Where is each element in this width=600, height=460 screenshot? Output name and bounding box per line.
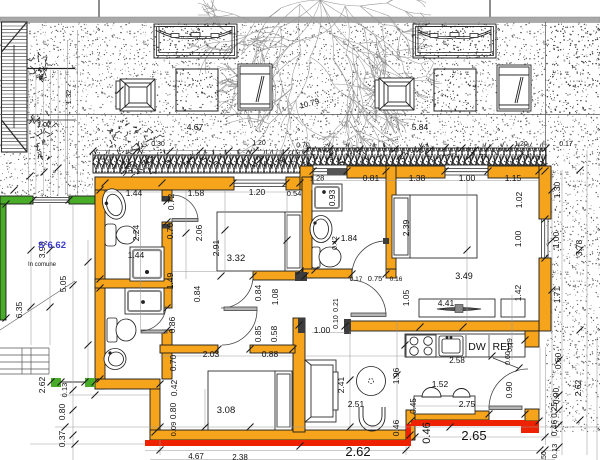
- svg-text:5.84: 5.84: [412, 122, 429, 132]
- svg-text:DW: DW: [468, 341, 486, 353]
- svg-text:3.08: 3.08: [217, 405, 236, 416]
- svg-text:6.35: 6.35: [14, 301, 24, 318]
- svg-text:2.58: 2.58: [449, 356, 465, 365]
- svg-text:0.70: 0.70: [296, 143, 310, 150]
- svg-text:0.46: 0.46: [549, 419, 559, 436]
- svg-text:1.20: 1.20: [252, 140, 266, 147]
- svg-text:S²6.62: S²6.62: [38, 240, 66, 251]
- svg-text:0.90: 0.90: [551, 387, 561, 404]
- svg-text:0.16: 0.16: [390, 276, 403, 283]
- svg-text:0.80: 0.80: [168, 402, 178, 419]
- svg-text:0.60: 0.60: [505, 351, 512, 365]
- svg-text:2.06: 2.06: [194, 224, 204, 241]
- svg-text:1.00: 1.00: [513, 230, 523, 247]
- svg-text:2.62: 2.62: [345, 444, 370, 459]
- svg-text:1.84: 1.84: [341, 233, 358, 243]
- svg-text:0.17: 0.17: [350, 276, 363, 283]
- svg-text:0.46: 0.46: [391, 419, 401, 436]
- svg-text:1.08: 1.08: [270, 288, 280, 305]
- svg-text:0.88: 0.88: [262, 349, 279, 359]
- svg-text:0.21: 0.21: [333, 298, 340, 312]
- svg-text:0.54: 0.54: [287, 189, 302, 198]
- svg-text:0.42: 0.42: [169, 379, 179, 396]
- svg-text:4.67: 4.67: [187, 122, 204, 132]
- svg-text:0.30: 0.30: [151, 141, 165, 148]
- svg-text:In comune: In comune: [28, 262, 57, 268]
- svg-text:1.58: 1.58: [188, 188, 205, 198]
- svg-text:2.75: 2.75: [459, 399, 476, 409]
- svg-text:0.93: 0.93: [327, 189, 337, 206]
- svg-text:0.84: 0.84: [192, 285, 202, 302]
- svg-text:2.65: 2.65: [461, 428, 486, 443]
- svg-text:3.49: 3.49: [455, 271, 473, 281]
- svg-text:1.52: 1.52: [432, 379, 449, 389]
- svg-text:1.02: 1.02: [37, 120, 52, 129]
- svg-text:1.71: 1.71: [552, 286, 562, 303]
- svg-text:0.86: 0.86: [167, 316, 177, 333]
- svg-text:2.91: 2.91: [211, 239, 221, 256]
- svg-text:1.50: 1.50: [541, 451, 548, 460]
- svg-text:0.17: 0.17: [559, 141, 573, 148]
- svg-text:0.10: 0.10: [333, 315, 340, 329]
- svg-text:0.25: 0.25: [550, 402, 559, 418]
- svg-text:1.02: 1.02: [514, 191, 524, 208]
- svg-text:0.85: 0.85: [253, 325, 263, 342]
- svg-text:0.75: 0.75: [368, 274, 383, 283]
- svg-text:1.42: 1.42: [513, 284, 523, 301]
- svg-text:0.45: 0.45: [409, 398, 418, 414]
- svg-text:4.41: 4.41: [438, 298, 455, 308]
- svg-text:1.49: 1.49: [165, 272, 175, 289]
- svg-text:2.03: 2.03: [203, 349, 220, 359]
- svg-text:1.15: 1.15: [505, 173, 522, 183]
- svg-text:0.60: 0.60: [553, 352, 563, 369]
- svg-text:1.28: 1.28: [310, 174, 325, 183]
- svg-text:0.13: 0.13: [60, 383, 69, 398]
- svg-text:1.44: 1.44: [128, 250, 145, 260]
- svg-text:3.78: 3.78: [574, 239, 584, 256]
- svg-text:0.37: 0.37: [57, 430, 67, 447]
- svg-text:1.32: 1.32: [64, 90, 73, 105]
- svg-text:0.09: 0.09: [169, 422, 178, 437]
- svg-text:2.51: 2.51: [348, 399, 365, 409]
- svg-text:0.90: 0.90: [504, 381, 514, 398]
- svg-text:1.20: 1.20: [514, 141, 528, 148]
- svg-text:0.70: 0.70: [165, 222, 175, 239]
- svg-text:0.13: 0.13: [550, 444, 559, 459]
- svg-text:0.58: 0.58: [269, 325, 279, 342]
- svg-text:1.20: 1.20: [249, 187, 266, 197]
- svg-text:1.00: 1.00: [314, 325, 331, 335]
- svg-text:0.72: 0.72: [166, 193, 176, 210]
- svg-text:2.39: 2.39: [401, 219, 411, 236]
- svg-text:0.42: 0.42: [332, 236, 339, 250]
- svg-text:0.29: 0.29: [507, 338, 514, 352]
- svg-text:0.70: 0.70: [168, 354, 178, 371]
- svg-text:0.46: 0.46: [421, 422, 433, 443]
- svg-text:1.38: 1.38: [409, 173, 426, 183]
- svg-text:2.24: 2.24: [131, 224, 141, 241]
- svg-text:2.62: 2.62: [573, 379, 583, 396]
- svg-text:2.38: 2.38: [232, 453, 248, 460]
- svg-text:2.62: 2.62: [37, 376, 47, 393]
- svg-text:1.05: 1.05: [401, 289, 411, 306]
- svg-text:1.96: 1.96: [391, 367, 401, 384]
- svg-text:1.44: 1.44: [126, 188, 143, 198]
- svg-text:1.00: 1.00: [459, 173, 476, 183]
- svg-text:5.05: 5.05: [58, 275, 68, 292]
- svg-text:0.80: 0.80: [57, 403, 67, 420]
- svg-text:2.41: 2.41: [336, 376, 346, 393]
- svg-text:4.67: 4.67: [188, 452, 204, 460]
- svg-text:1.30: 1.30: [552, 181, 562, 198]
- svg-text:0.81: 0.81: [363, 173, 380, 183]
- svg-text:0.84: 0.84: [253, 284, 263, 301]
- svg-text:1.00: 1.00: [551, 231, 561, 248]
- svg-text:3.32: 3.32: [227, 253, 246, 264]
